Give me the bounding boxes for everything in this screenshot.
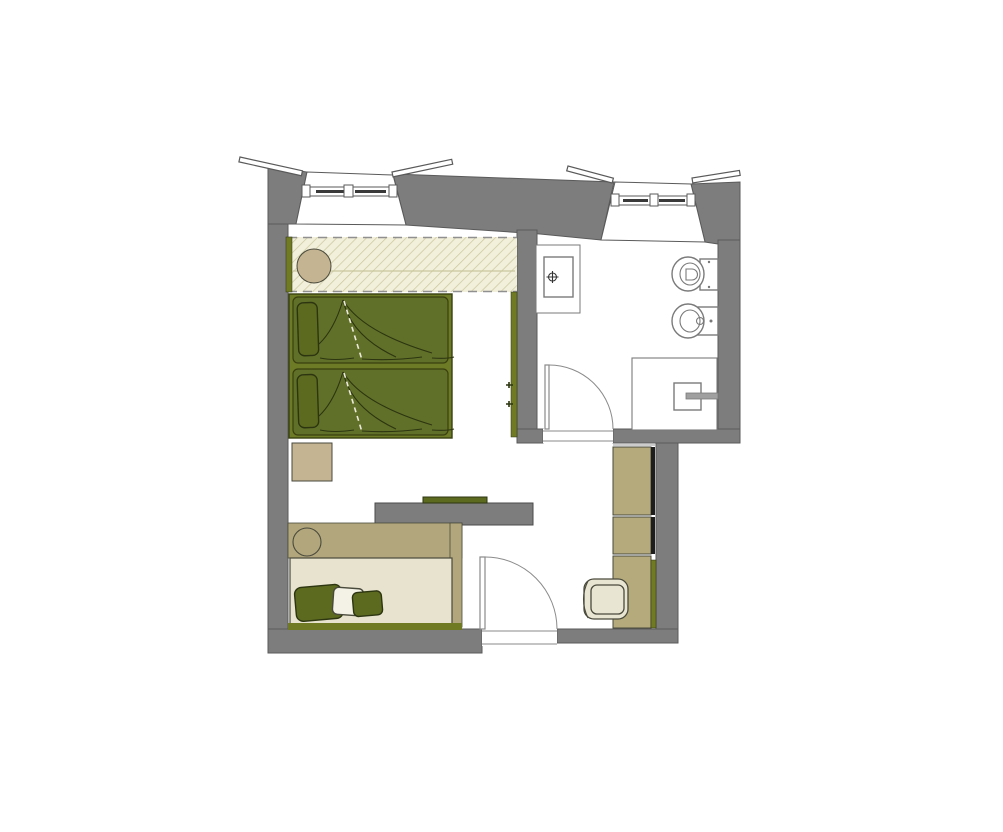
- wall-bathroom-bottom-left-chunk: [517, 429, 543, 443]
- daybed: [288, 523, 462, 630]
- bathroom-window-shutter-right-icon: [692, 170, 740, 182]
- daybed-base-strip: [288, 623, 462, 630]
- wardrobe-cabinet-upper-edge: [651, 447, 655, 515]
- wall-bathroom-bottom-right: [613, 429, 740, 443]
- toilet-dot-2: [708, 286, 710, 288]
- wall-top-middle: [393, 174, 614, 240]
- wardrobe-desk-unit: [584, 445, 657, 628]
- entrance-door-swing-arc: [485, 557, 557, 629]
- entrance-door-leaf: [480, 557, 485, 629]
- bedroom-window-post-center: [344, 185, 353, 197]
- vanity-washbasin: [632, 358, 718, 430]
- bathroom-window-reveal: [601, 182, 705, 242]
- bathroom-window-post-right: [687, 194, 695, 206]
- bathroom-window-glazing-right: [659, 199, 685, 202]
- wall-left: [268, 166, 288, 653]
- pillow-lower: [297, 374, 319, 428]
- toilet-bowl: [672, 257, 704, 291]
- bedroom-window-post-right: [389, 185, 397, 197]
- round-stool: [297, 249, 331, 283]
- bedroom-window-post-left: [302, 185, 310, 197]
- wardrobe-cabinet-upper: [613, 447, 651, 515]
- floor-plan-canvas: [0, 0, 1003, 832]
- wall-bottom-right-segment: [557, 629, 678, 643]
- desk-side-strip: [651, 560, 656, 628]
- wall-right-outer: [718, 240, 740, 443]
- bidet: [672, 304, 718, 338]
- bedroom-window-glazing-right: [355, 190, 386, 193]
- bathroom-door-leaf: [545, 365, 549, 429]
- washbasin-faucet: [686, 393, 718, 399]
- daybed-platform-back: [288, 523, 462, 558]
- bathroom-door-swing-arc: [549, 365, 613, 429]
- bathroom-window-glazing-left: [623, 199, 648, 202]
- wall-lower-right: [656, 443, 678, 643]
- shower: [536, 245, 580, 313]
- bathroom-window-post-left: [611, 194, 619, 206]
- bedroom-window-shutter-right-icon: [392, 159, 453, 177]
- bedroom-window-reveal: [296, 172, 406, 225]
- entrance-door: [480, 557, 557, 646]
- daybed-cushion-green-small: [352, 590, 383, 616]
- wall-bathroom-left: [517, 230, 537, 429]
- desk-chair-seat: [591, 585, 624, 614]
- side-table: [292, 443, 332, 481]
- bathroom: [536, 245, 718, 443]
- bedroom: [286, 237, 533, 630]
- bedroom-window-glazing-left: [316, 190, 344, 193]
- bidet-body: [672, 304, 704, 338]
- wall-bottom-left-segment: [268, 629, 482, 653]
- bathroom-door: [543, 365, 613, 443]
- wardrobe-cabinet-lower-edge: [651, 517, 655, 554]
- pillow-upper: [297, 302, 319, 356]
- headboard-left-strip: [286, 237, 292, 292]
- entrance-door-opening: [482, 629, 557, 646]
- toilet-dot-1: [708, 261, 710, 263]
- wardrobe-cabinet-lower: [613, 517, 651, 554]
- floor-plan-drawing: [0, 0, 1003, 832]
- wall-panel-strip: [511, 292, 517, 437]
- double-bed: [289, 294, 454, 438]
- desk-chair: [584, 579, 629, 619]
- tv-partition: [375, 503, 533, 525]
- bidet-dot: [710, 320, 713, 323]
- tv: [423, 497, 487, 503]
- toilet: [672, 257, 718, 291]
- bathroom-window-post-center: [650, 194, 658, 206]
